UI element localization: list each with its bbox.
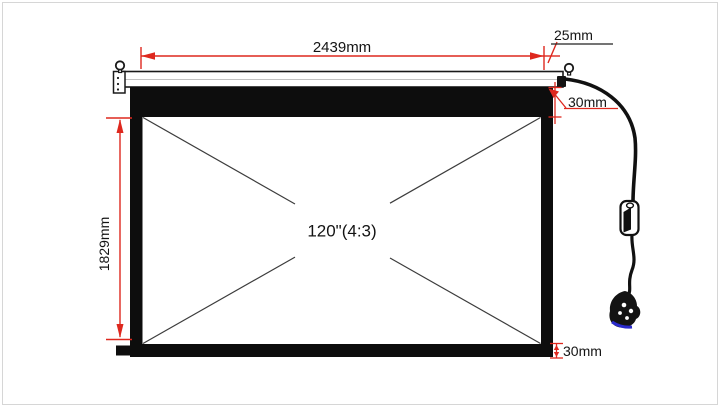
mounting-ring-left-icon <box>116 61 124 69</box>
inline-switch <box>621 201 639 235</box>
left-end-bracket <box>114 72 126 94</box>
housing-offset-label: 25mm <box>554 28 593 42</box>
top-border-label: 30mm <box>568 95 607 109</box>
bottom-border-label: 30mm <box>563 344 602 358</box>
screen-size-label: 120"(4:3) <box>307 223 376 240</box>
mounting-ring-right-icon <box>565 64 573 72</box>
power-cable <box>565 79 636 296</box>
dim-width-label: 2439mm <box>313 40 371 55</box>
height-label: 1829mm <box>97 217 111 271</box>
bottom-bar-end-cap <box>116 346 131 356</box>
dim-housing-offset <box>544 42 613 63</box>
power-plug <box>609 291 640 328</box>
projection-screen-diagram: 2439mm 25mm 30mm 1829mm 30mm 120"(4:3) <box>0 0 720 407</box>
diagram-linework <box>0 0 720 407</box>
